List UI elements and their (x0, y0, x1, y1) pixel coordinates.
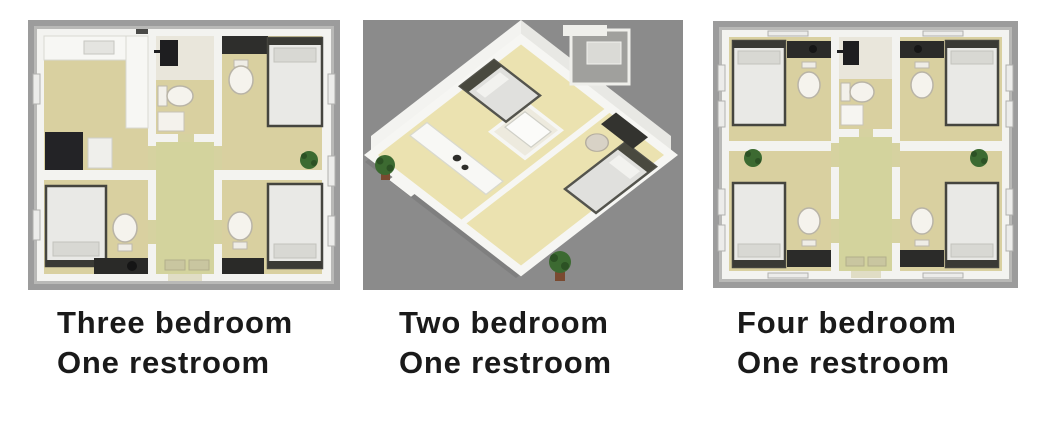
bed-icon (733, 41, 785, 125)
caption-line: One restroom (399, 343, 612, 383)
entry-door-icon (563, 25, 629, 84)
bed-icon (268, 38, 322, 126)
sink-icon (158, 112, 184, 131)
vanity-icon (900, 250, 944, 267)
panel-three-bedroom (28, 20, 340, 290)
plant-icon (744, 149, 762, 167)
toilet-icon (841, 82, 874, 102)
caption-line: Three bedroom (57, 303, 293, 343)
bed-icon (733, 183, 785, 267)
bed-icon (946, 183, 998, 267)
toilet-icon (158, 86, 193, 106)
panel-four-bedroom (713, 21, 1018, 288)
vent-icon (136, 29, 148, 34)
plant-icon (300, 151, 318, 169)
floor-plan-four-bedroom-image (713, 21, 1018, 288)
vanity-icon (222, 258, 264, 274)
plant-icon (970, 149, 988, 167)
floor-plan-collage: Three bedroom One restroom Two bedroom O… (0, 0, 1059, 426)
caption-line: One restroom (57, 343, 293, 383)
floor-plan-three-bedroom-image (28, 20, 340, 290)
vanity-icon (900, 41, 944, 58)
vanity-icon (94, 258, 148, 274)
caption-line: One restroom (737, 343, 957, 383)
caption-four-bedroom: Four bedroom One restroom (737, 303, 957, 383)
bed-icon (46, 186, 106, 267)
caption-line: Two bedroom (399, 303, 612, 343)
caption-line: Four bedroom (737, 303, 957, 343)
vanity-icon (787, 41, 831, 58)
caption-two-bedroom: Two bedroom One restroom (399, 303, 612, 383)
floor-plan-two-bedroom-image (363, 20, 683, 290)
bed-icon (268, 184, 322, 268)
panel-two-bedroom (363, 20, 683, 290)
cabinet-icon (45, 132, 83, 170)
vanity-icon (787, 250, 831, 267)
sideboard-icon (88, 138, 112, 168)
vanity-icon (222, 36, 268, 54)
bed-icon (946, 41, 998, 125)
shower-door-icon (841, 105, 863, 125)
caption-three-bedroom: Three bedroom One restroom (57, 303, 293, 383)
